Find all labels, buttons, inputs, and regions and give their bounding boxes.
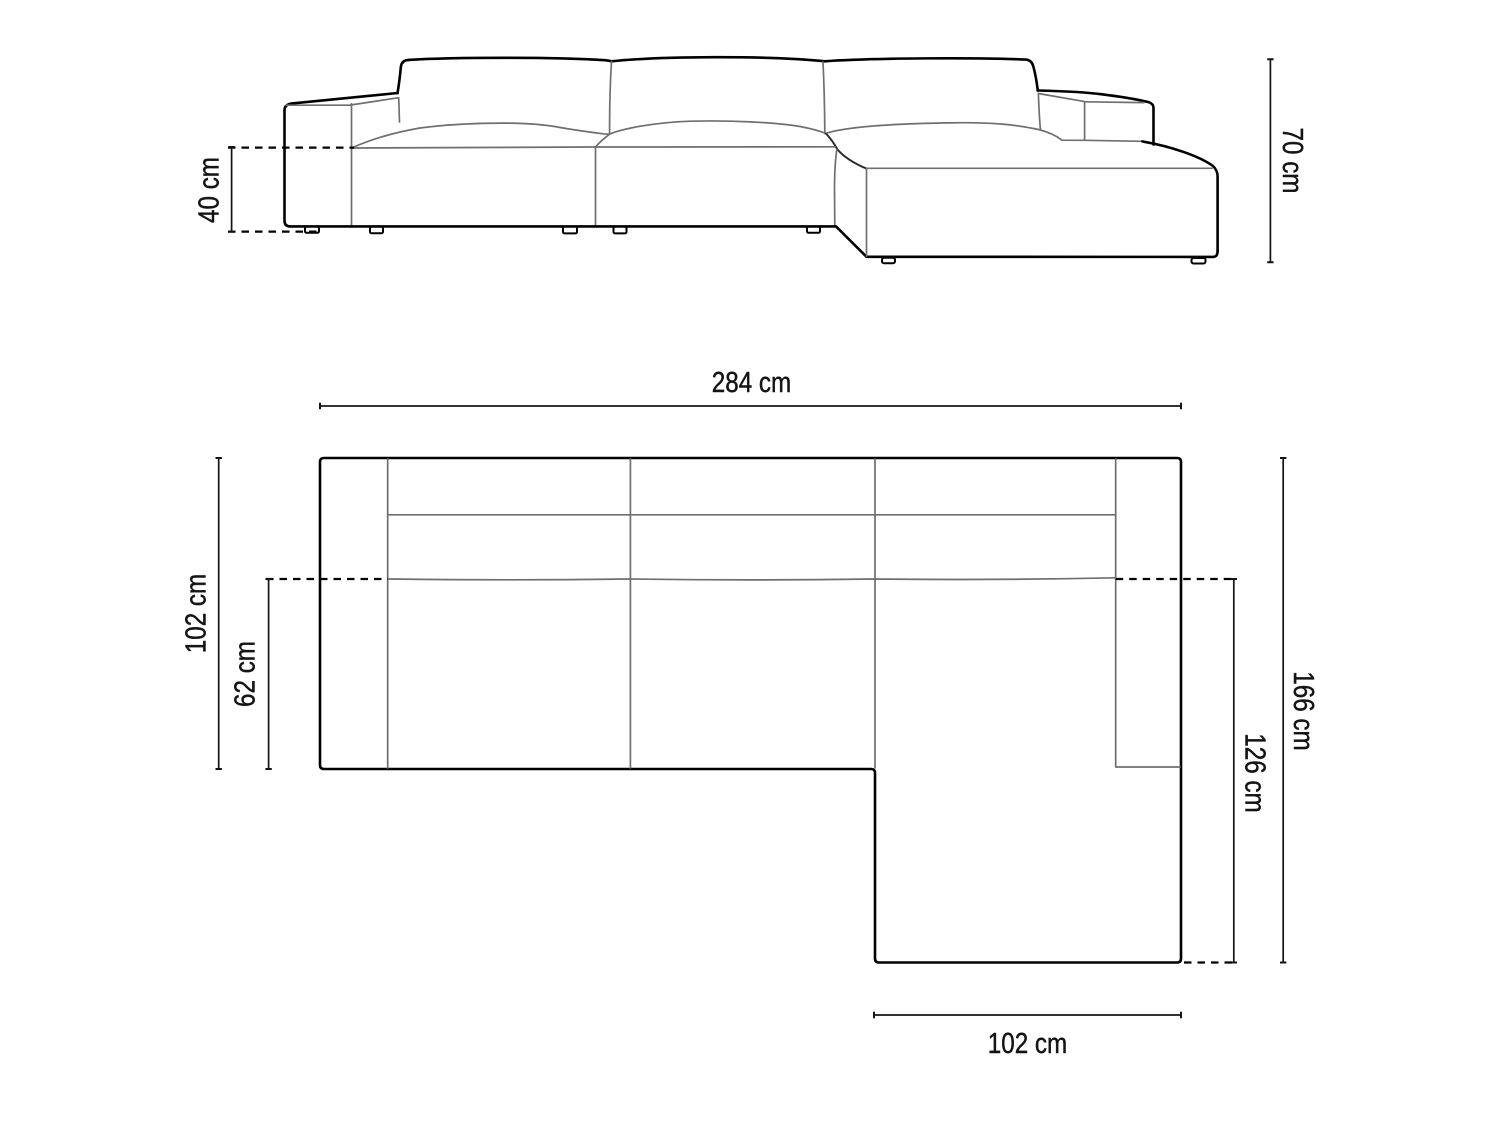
svg-text:126 cm: 126 cm [1239,733,1271,812]
svg-text:40 cm: 40 cm [192,157,224,223]
svg-text:166 cm: 166 cm [1287,671,1319,750]
svg-text:284 cm: 284 cm [712,366,791,398]
svg-text:102 cm: 102 cm [988,1027,1067,1059]
svg-text:102 cm: 102 cm [180,574,212,653]
svg-text:62 cm: 62 cm [229,641,261,707]
svg-text:70 cm: 70 cm [1276,128,1308,194]
